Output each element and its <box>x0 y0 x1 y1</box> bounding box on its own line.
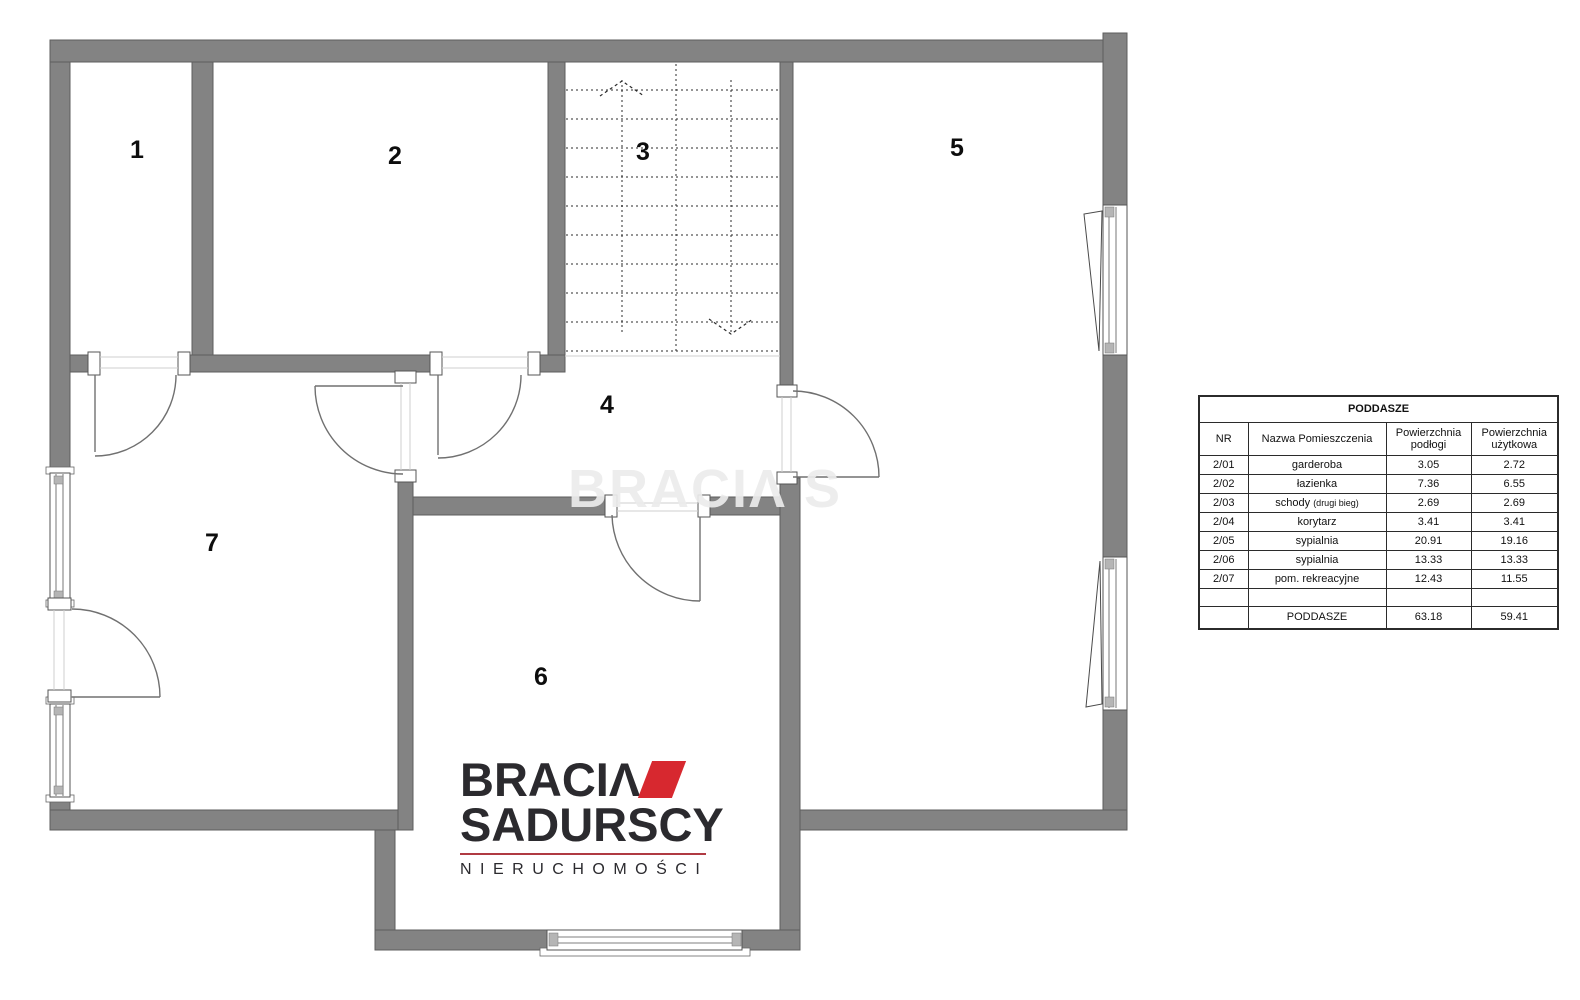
total-usable-area: 59.41 <box>1471 607 1558 630</box>
table-row: 2/03 schody (drugi bieg) 2.69 2.69 <box>1199 494 1558 513</box>
door-arc <box>315 386 403 474</box>
door-room5 <box>793 391 879 477</box>
area-table-container: PODDASZE NR Nazwa Pomieszczenia Powierzc… <box>1198 395 1559 630</box>
window <box>46 467 74 607</box>
room-number-label: 2 <box>388 142 402 170</box>
wall-segment <box>780 62 793 388</box>
room-name: schody <box>1275 497 1310 509</box>
doors <box>72 375 879 697</box>
cell-usable: 11.55 <box>1471 570 1558 589</box>
cell-name: łazienka <box>1248 475 1386 494</box>
door-room2 <box>438 375 521 458</box>
col-header-nr: NR <box>1199 423 1248 456</box>
door-room6 <box>612 515 700 601</box>
wall-segment <box>50 810 405 830</box>
room-number-labels: 1 2 3 4 5 6 7 <box>130 134 964 691</box>
table-row: 2/06 sypialnia 13.33 13.33 <box>1199 551 1558 570</box>
door-jamb <box>88 352 100 375</box>
cell-usable: 6.55 <box>1471 475 1558 494</box>
col-header-usable-area: Powierzchnia użytkowa <box>1471 423 1558 456</box>
wall-segment <box>538 355 565 372</box>
cell-name: sypialnia <box>1248 532 1386 551</box>
window <box>1086 557 1127 710</box>
door-room1 <box>95 375 176 456</box>
cell-name: sypialnia <box>1248 551 1386 570</box>
door-balcony-room7 <box>72 609 160 697</box>
wall-segment <box>1103 355 1127 557</box>
wall-segment <box>398 473 413 830</box>
col-header-name: Nazwa Pomieszczenia <box>1248 423 1386 456</box>
room-number-label: 1 <box>130 136 144 164</box>
room-name: sypialnia <box>1296 535 1339 547</box>
area-table: PODDASZE NR Nazwa Pomieszczenia Powierzc… <box>1198 395 1559 630</box>
room-number-label: 5 <box>950 134 964 162</box>
table-row: 2/01 garderoba 3.05 2.72 <box>1199 456 1558 475</box>
wall-segment <box>742 930 800 950</box>
logo-brand-top: BRACIΛ <box>460 758 730 801</box>
cell-floor: 3.41 <box>1386 513 1471 532</box>
col-header-floor-area: Powierzchnia podłogi <box>1386 423 1471 456</box>
logo-divider <box>460 853 706 855</box>
wall-segment <box>548 62 565 355</box>
cell-name: pom. rekreacyjne <box>1248 570 1386 589</box>
cell-nr: 2/04 <box>1199 513 1248 532</box>
cell-nr: 2/01 <box>1199 456 1248 475</box>
cell-name: garderoba <box>1248 456 1386 475</box>
door-jamb <box>48 690 71 702</box>
table-row: 2/07 pom. rekreacyjne 12.43 11.55 <box>1199 570 1558 589</box>
door-jamb <box>395 470 416 482</box>
window <box>46 697 74 802</box>
logo-red-parallelogram-icon <box>638 761 686 798</box>
door-jamb <box>605 495 617 517</box>
door-jambs <box>48 352 797 702</box>
cell-usable: 2.69 <box>1471 494 1558 513</box>
door-arc <box>438 375 521 458</box>
cell-usable: 2.72 <box>1471 456 1558 475</box>
wall-segment <box>50 62 70 473</box>
floor-plan-page: 1 2 3 4 5 6 7 BRACIΛ S BRACIΛ SADURSCY N… <box>0 0 1580 1000</box>
window <box>540 930 750 956</box>
cell-usable: 3.41 <box>1471 513 1558 532</box>
cell-nr: 2/03 <box>1199 494 1248 513</box>
door-arc <box>95 375 176 456</box>
door-arc <box>612 515 700 601</box>
logo-brand-top-text: BRACIΛ <box>460 758 640 801</box>
room-name-note: (drugi bieg) <box>1313 498 1359 508</box>
wall-segment <box>185 355 430 372</box>
cell-nr: 2/06 <box>1199 551 1248 570</box>
wall-segment <box>703 497 780 515</box>
door-arc <box>72 609 160 697</box>
cell-name: korytarz <box>1248 513 1386 532</box>
cell-floor: 7.36 <box>1386 475 1471 494</box>
window <box>1084 205 1127 355</box>
room-name: sypialnia <box>1296 554 1339 566</box>
wall-segment <box>1103 33 1127 205</box>
agency-logo: BRACIΛ SADURSCY NIERUCHOMOŚCI <box>460 758 730 879</box>
table-row: 2/05 sypialnia 20.91 19.16 <box>1199 532 1558 551</box>
room-name: garderoba <box>1292 459 1342 471</box>
table-row: 2/04 korytarz 3.41 3.41 <box>1199 513 1558 532</box>
door-arc <box>793 391 879 477</box>
total-label: PODDASZE <box>1248 607 1386 630</box>
cell-name: schody (drugi bieg) <box>1248 494 1386 513</box>
room-number-label: 4 <box>600 391 614 419</box>
cell-usable: 19.16 <box>1471 532 1558 551</box>
window-opening-triangle <box>1084 211 1102 351</box>
door-room7-corridor <box>315 386 403 474</box>
table-header-row: NR Nazwa Pomieszczenia Powierzchnia podł… <box>1199 423 1558 456</box>
table-title: PODDASZE <box>1199 396 1558 423</box>
wall-segment <box>375 930 547 950</box>
door-jamb <box>178 352 190 375</box>
room-name: łazienka <box>1297 478 1337 490</box>
total-floor-area: 63.18 <box>1386 607 1471 630</box>
cell-floor: 20.91 <box>1386 532 1471 551</box>
wall-segment <box>780 478 800 950</box>
door-jamb <box>698 495 710 517</box>
wall-segment <box>192 62 213 355</box>
cell-usable: 13.33 <box>1471 551 1558 570</box>
window-opening-triangle <box>1086 561 1102 707</box>
cell-floor: 2.69 <box>1386 494 1471 513</box>
room-number-label: 3 <box>636 138 650 166</box>
door-jamb <box>395 371 416 383</box>
room-number-label: 7 <box>205 529 219 557</box>
door-jamb <box>48 598 71 610</box>
cell-nr: 2/02 <box>1199 475 1248 494</box>
wall-segment <box>50 40 1127 62</box>
table-empty-row <box>1199 589 1558 607</box>
cell-floor: 13.33 <box>1386 551 1471 570</box>
wall-segment <box>413 497 608 515</box>
door-jamb <box>777 472 797 484</box>
cell-floor: 3.05 <box>1386 456 1471 475</box>
logo-brand-bottom: SADURSCY <box>460 801 730 848</box>
logo-tagline: NIERUCHOMOŚCI <box>460 861 730 879</box>
table-row: 2/02 łazienka 7.36 6.55 <box>1199 475 1558 494</box>
table-total-row: PODDASZE 63.18 59.41 <box>1199 607 1558 630</box>
room-number-label: 6 <box>534 663 548 691</box>
door-jamb <box>528 352 540 375</box>
cell-nr: 2/05 <box>1199 532 1248 551</box>
cell-floor: 12.43 <box>1386 570 1471 589</box>
opening-guides <box>54 356 791 690</box>
door-jamb <box>430 352 442 375</box>
stairs-up-arrow <box>600 81 644 96</box>
stairs <box>566 64 779 351</box>
table-title-row: PODDASZE <box>1199 396 1558 423</box>
wall-segment <box>800 810 1127 830</box>
room-name: korytarz <box>1297 516 1336 528</box>
room-name: pom. rekreacyjne <box>1275 573 1359 585</box>
cell-nr: 2/07 <box>1199 570 1248 589</box>
